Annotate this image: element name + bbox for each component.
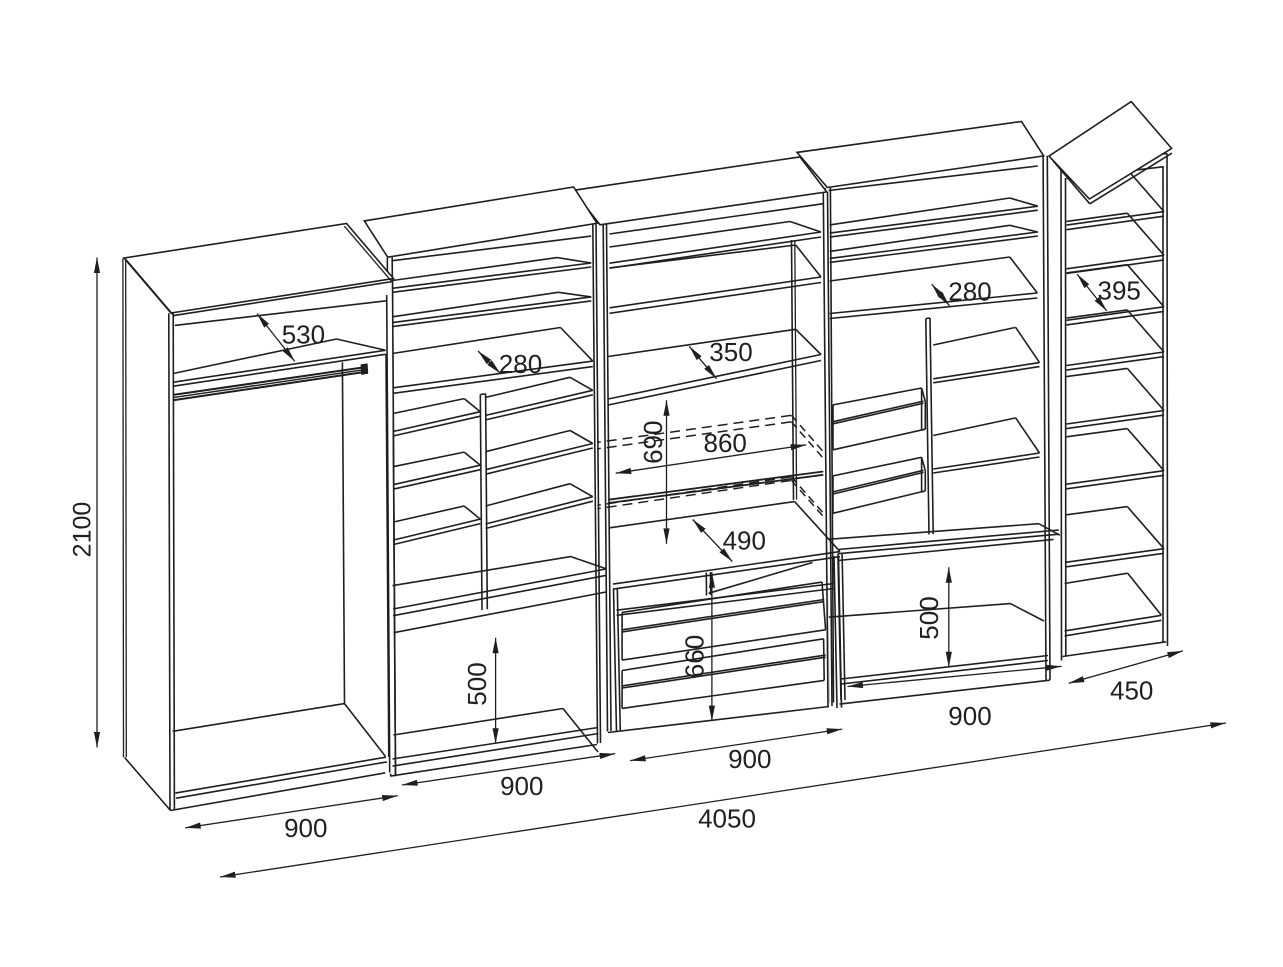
svg-text:2100: 2100 xyxy=(69,502,97,558)
svg-text:530: 530 xyxy=(282,320,325,350)
svg-text:690: 690 xyxy=(638,421,668,464)
svg-text:900: 900 xyxy=(728,744,771,774)
svg-text:900: 900 xyxy=(284,813,327,843)
svg-text:490: 490 xyxy=(723,526,766,556)
svg-text:860: 860 xyxy=(704,428,747,458)
svg-text:500: 500 xyxy=(914,596,944,639)
svg-text:500: 500 xyxy=(462,662,492,705)
svg-text:450: 450 xyxy=(1110,676,1153,706)
svg-text:4050: 4050 xyxy=(698,803,756,833)
svg-text:350: 350 xyxy=(709,337,752,367)
svg-text:900: 900 xyxy=(500,771,543,801)
svg-text:660: 660 xyxy=(680,635,710,678)
svg-text:395: 395 xyxy=(1098,276,1141,306)
svg-text:280: 280 xyxy=(499,349,542,379)
svg-text:900: 900 xyxy=(948,701,991,731)
svg-text:280: 280 xyxy=(948,277,991,307)
